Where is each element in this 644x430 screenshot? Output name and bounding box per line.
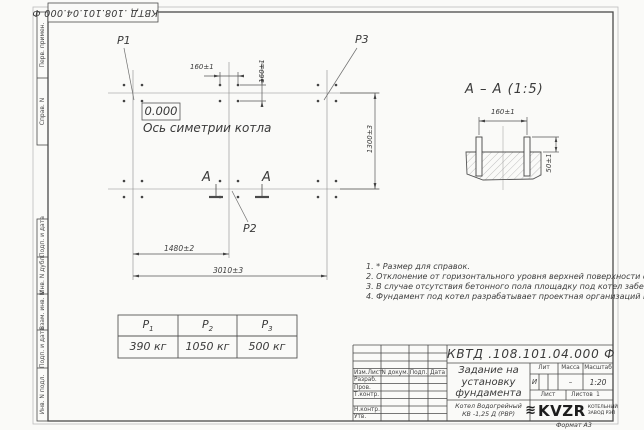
load-table-header-p2: Р2	[178, 318, 237, 333]
tb-row-tkontr: Т.контр.	[354, 392, 379, 399]
kvzr-logo-subtitle: КОТЕЛЬНЫЙ ЗАВОД РЭП	[588, 405, 618, 416]
tb-product-line1: Котел Водогрейный	[447, 403, 530, 410]
tb-title-line3: фундамента	[447, 388, 530, 399]
kvzr-logo-text: KVZR	[538, 402, 586, 420]
tb-sheets-value: 1	[592, 392, 604, 399]
margin-col-podp-data-2: Подп. и дата	[37, 330, 48, 368]
kvzr-logo-icon: ≋	[525, 403, 536, 418]
section-dim-bolt-spacing: 160±1	[491, 108, 515, 116]
note-3: 3. В случае отсутствия бетонного пола пл…	[353, 282, 621, 292]
notes-block: 1. * Размер для справок. 2. Отклонение о…	[353, 262, 621, 302]
tb-header-n-dokum: N докум.	[381, 370, 409, 377]
tb-row-nkontr: Н.контр.	[354, 407, 380, 414]
margin-col-vzam-inv: Взам. инв. N	[37, 294, 48, 330]
section-aa-title: А – А (1:5)	[465, 82, 544, 97]
load-table-header-p1: Р1	[118, 318, 178, 333]
dim-total-span: 3010±3	[213, 266, 243, 275]
tb-lit-label: Лит	[530, 365, 558, 372]
section-dim-bolt-height: 50±1	[545, 149, 553, 177]
tb-lit-value: И	[530, 378, 539, 386]
tb-header-data: Дата	[428, 370, 447, 377]
plan-geometry	[108, 48, 380, 280]
section-letter-right: А	[262, 170, 271, 185]
note-2: 2. Отклонение от горизонтального уровня …	[353, 272, 621, 282]
tb-mass-label: Масса	[558, 365, 583, 372]
dim-bolt-spacing-horizontal: 160±1	[190, 63, 214, 71]
load-point-p1-label: Р1	[117, 34, 131, 47]
note-1: 1. * Размер для справок.	[353, 262, 621, 272]
title-block-doc-number: КВТД .108.101.04.000 Ф	[447, 347, 613, 361]
blueprint-sheet: КВТД .108.101.04.000 Ф Перв. примен. Спр…	[0, 0, 644, 430]
dim-bolt-spacing-vertical: 160±1	[258, 58, 266, 84]
tb-scale-value: 1:20	[583, 378, 613, 387]
tb-sheet-label: Лист	[530, 392, 566, 399]
tb-header-podp: Подп.	[409, 370, 428, 377]
elevation-label: 0.000	[142, 104, 180, 118]
dim-foundation-width: 1300±3	[366, 118, 374, 160]
load-table-value-p3: 500 кг	[237, 340, 297, 353]
sheet-frame	[33, 7, 618, 424]
load-table-header-p3: Р3	[237, 318, 297, 333]
top-stamp-doc-number: КВТД .108.101.04.000 Ф	[48, 3, 158, 22]
load-point-p3-label: Р3	[355, 33, 369, 46]
tb-scale-label: Масштаб	[583, 365, 613, 372]
margin-col-podp-data-1: Подп. и дата	[37, 219, 48, 257]
margin-col-inv-podl: Инв. N подл.	[37, 368, 48, 421]
section-letter-left: А	[202, 170, 211, 185]
margin-col-inv-dubl: Инв. N дубл.	[37, 257, 48, 294]
dim-left-span: 1480±2	[164, 244, 194, 253]
format-note: Формат А3	[556, 422, 592, 429]
tb-header-izm-list: Изм.Лист	[354, 370, 382, 377]
tb-row-utv: Утв.	[354, 414, 366, 421]
tb-row-prov: Пров.	[354, 385, 371, 392]
margin-col-perv-primen: Перв. примен.	[37, 12, 48, 78]
kvzr-logo: ≋ KVZR КОТЕЛЬНЫЙ ЗАВОД РЭП	[530, 400, 613, 421]
tb-title-line1: Задание на	[447, 365, 530, 376]
load-table-value-p1: 390 кг	[118, 340, 178, 353]
tb-product-line2: КВ -1,25 Д (РВР)	[447, 411, 530, 418]
load-table-value-p2: 1050 кг	[178, 340, 237, 353]
margin-col-sprav-n: Справ. N	[37, 78, 48, 145]
load-point-p2-label: Р2	[243, 222, 257, 235]
tb-row-razrab: Разраб.	[354, 377, 377, 384]
tb-title-line2: установку	[447, 377, 530, 388]
boiler-symmetry-axis-label: Ось симетрии котла	[143, 121, 271, 135]
note-4: 4. Фундамент под котел разрабатывает про…	[353, 292, 621, 302]
tb-mass-value: –	[558, 378, 583, 386]
